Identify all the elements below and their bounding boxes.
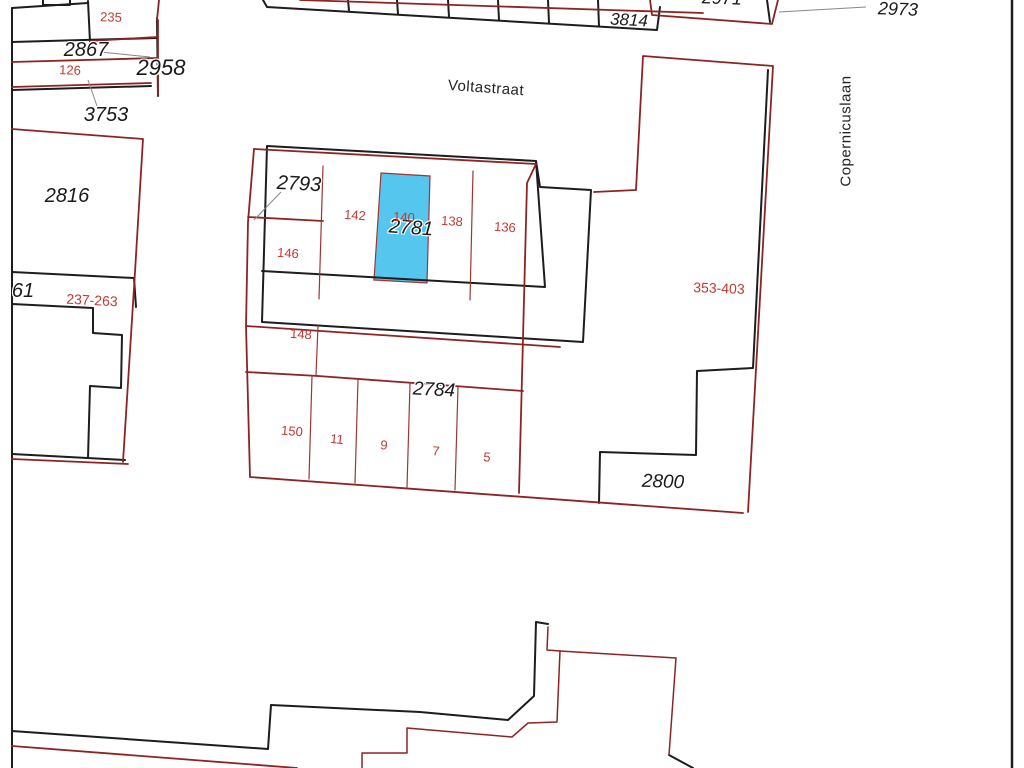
housenumber-label-11: 11 [330,432,345,446]
housenumber-label-138: 138 [441,214,464,228]
housenumber-label-140: 140 [393,210,416,224]
street-label-copernicuslaan: Copernicuslaan [839,75,854,186]
map-canvas[interactable]: 2958 2867 3753 2816 61 3814 2971 2973 27… [0,0,1024,768]
housenumber-label-9: 9 [380,438,388,452]
housenumber-label-126: 126 [59,63,81,77]
housenumber-label-146: 146 [277,246,300,260]
parcel-label-2800: 2800 [642,472,685,492]
housenumber-label-136: 136 [494,220,517,234]
parcel-label-3753: 3753 [84,105,129,125]
parcel-label-2867: 2867 [64,40,109,60]
cadastral-map-linework [0,0,1024,768]
parcel-label-2958: 2958 [137,57,186,79]
housenumber-label-142: 142 [344,208,367,222]
parcel-label-2973: 2973 [878,0,919,19]
housenumber-label-5: 5 [483,450,491,464]
parcel-label-61: 61 [12,281,34,301]
housenumber-label-237-263: 237-263 [66,292,118,309]
housenumber-label-148: 148 [290,327,313,341]
housenumber-label-235: 235 [100,10,122,24]
parcel-label-2816: 2816 [45,186,90,206]
parcel-label-2793: 2793 [276,173,321,195]
housenumber-label-353-403: 353-403 [693,280,745,296]
parcel-label-2784: 2784 [412,379,455,400]
housenumber-label-7: 7 [432,444,440,458]
parcel-label-3814: 3814 [610,11,649,30]
label-leader-lines [88,7,866,220]
housenumber-label-150: 150 [281,424,304,439]
parcel-label-2971: 2971 [702,0,743,8]
black-outlines [12,0,1012,768]
